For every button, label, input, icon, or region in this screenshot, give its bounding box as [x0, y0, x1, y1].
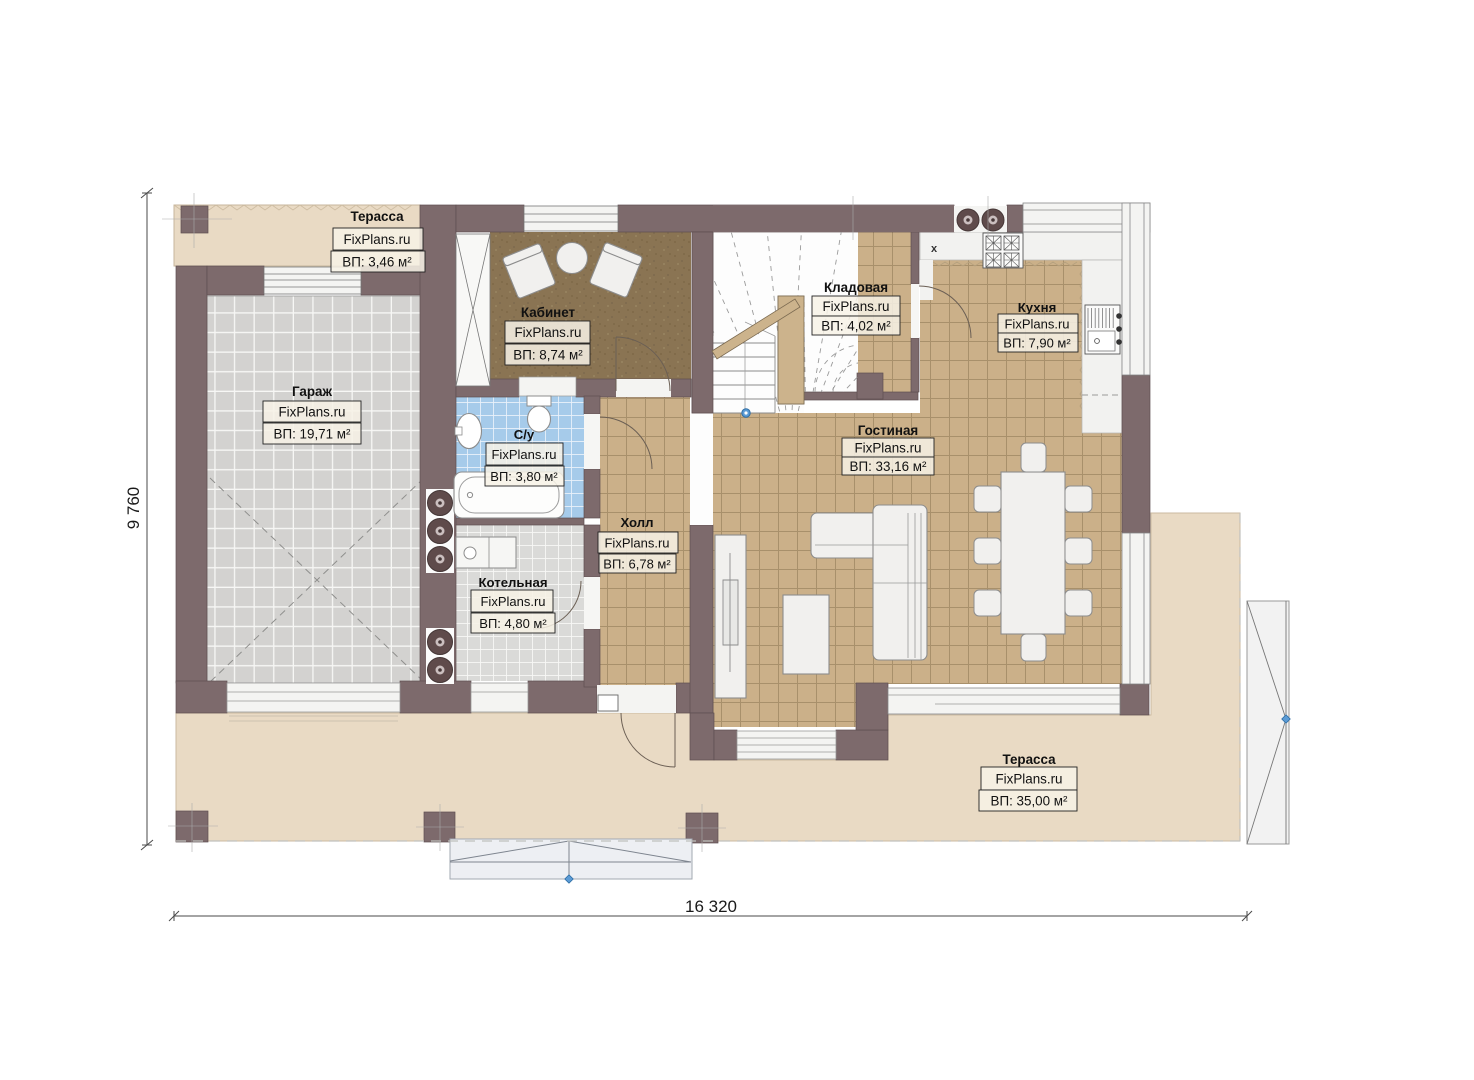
- svg-text:С/у: С/у: [514, 427, 535, 442]
- svg-text:16 320: 16 320: [685, 897, 737, 916]
- svg-text:FixPlans.ru: FixPlans.ru: [515, 325, 582, 340]
- svg-text:Гостиная: Гостиная: [858, 423, 919, 438]
- svg-text:Холл: Холл: [620, 515, 653, 530]
- svg-text:ВП: 4,02 м²: ВП: 4,02 м²: [821, 318, 891, 333]
- svg-text:FixPlans.ru: FixPlans.ru: [279, 404, 346, 419]
- svg-text:x: x: [931, 243, 938, 255]
- svg-text:ВП: 35,00 м²: ВП: 35,00 м²: [991, 793, 1068, 808]
- svg-text:ВП: 4,80 м²: ВП: 4,80 м²: [479, 616, 547, 631]
- svg-text:FixPlans.ru: FixPlans.ru: [344, 232, 411, 247]
- svg-text:ВП: 6,78 м²: ВП: 6,78 м²: [603, 556, 671, 571]
- svg-text:ВП: 33,16 м²: ВП: 33,16 м²: [850, 459, 927, 474]
- svg-text:FixPlans.ru: FixPlans.ru: [1004, 316, 1069, 331]
- svg-text:ВП: 8,74 м²: ВП: 8,74 м²: [513, 347, 583, 362]
- svg-text:Терасса: Терасса: [1002, 752, 1056, 767]
- svg-text:9 760: 9 760: [124, 487, 143, 530]
- svg-text:FixPlans.ru: FixPlans.ru: [604, 535, 669, 550]
- svg-text:ВП: 19,71 м²: ВП: 19,71 м²: [274, 426, 351, 441]
- svg-text:ВП: 7,90 м²: ВП: 7,90 м²: [1003, 335, 1071, 350]
- svg-text:Котельная: Котельная: [478, 575, 547, 590]
- svg-text:FixPlans.ru: FixPlans.ru: [491, 447, 556, 462]
- svg-text:FixPlans.ru: FixPlans.ru: [480, 594, 545, 609]
- svg-text:Терасса: Терасса: [350, 209, 404, 224]
- svg-text:ВП: 3,80 м²: ВП: 3,80 м²: [490, 469, 558, 484]
- svg-text:FixPlans.ru: FixPlans.ru: [823, 299, 890, 314]
- svg-text:FixPlans.ru: FixPlans.ru: [996, 771, 1063, 786]
- svg-text:Кладовая: Кладовая: [824, 280, 888, 295]
- svg-text:FixPlans.ru: FixPlans.ru: [855, 440, 922, 455]
- svg-text:Гараж: Гараж: [292, 384, 332, 399]
- svg-text:Кабинет: Кабинет: [521, 305, 576, 320]
- svg-text:Кухня: Кухня: [1018, 300, 1057, 315]
- svg-text:ВП: 3,46 м²: ВП: 3,46 м²: [342, 254, 412, 269]
